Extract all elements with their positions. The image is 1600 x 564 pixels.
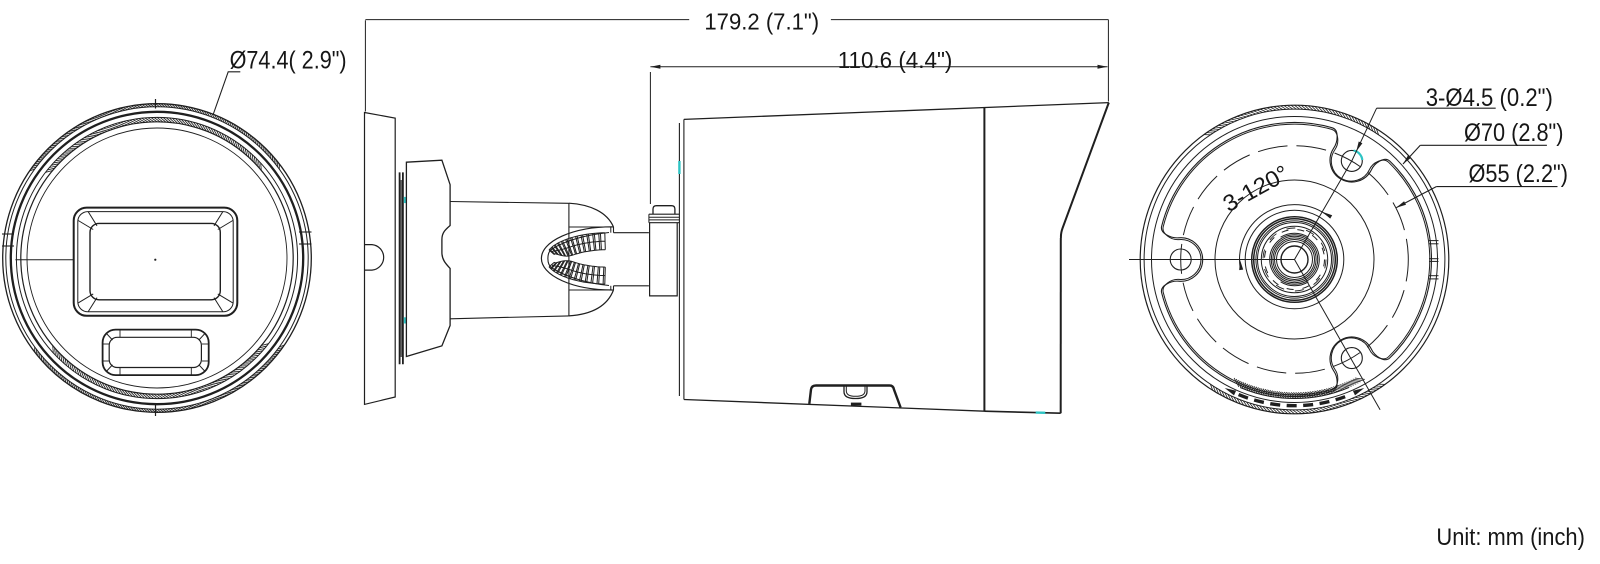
svg-text:Unit: mm (inch): Unit: mm (inch) — [1436, 524, 1585, 551]
svg-text:Ø70 (2.8"): Ø70 (2.8") — [1464, 119, 1564, 147]
svg-text:179.2 (7.1"): 179.2 (7.1") — [704, 8, 819, 34]
svg-text:3-120°: 3-120° — [1218, 160, 1293, 217]
svg-text:110.6 (4.4"): 110.6 (4.4") — [838, 47, 953, 73]
svg-text:3-Ø4.5 (0.2"): 3-Ø4.5 (0.2") — [1426, 84, 1553, 112]
svg-text:Ø55 (2.2"): Ø55 (2.2") — [1469, 160, 1569, 188]
svg-text:Ø74.4( 2.9"): Ø74.4( 2.9") — [230, 46, 347, 74]
